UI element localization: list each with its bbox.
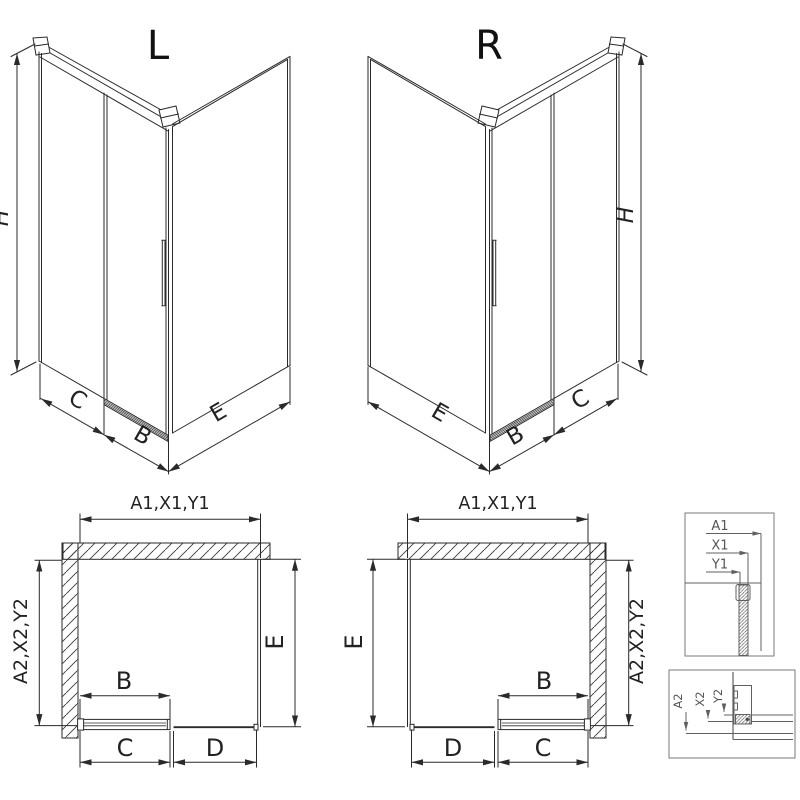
plan-right-label-d: D <box>444 734 462 762</box>
plan-left-label-b: B <box>116 667 132 695</box>
plan-right-label-a2x2y2: A2,X2,Y2 <box>626 598 648 684</box>
detail-label-a1: A1 <box>711 519 728 534</box>
detail-label-x1: X1 <box>711 539 728 554</box>
plan-view-left: A1,X1,Y1 A2,X2,Y2 E B C D <box>10 494 301 768</box>
shower-enclosure-dimension-diagram: L H C B E R H E B C A1,X1,Y1 A2,X2,Y2 E … <box>0 0 800 800</box>
variant-label-right: R <box>475 23 503 69</box>
dim-label-e-left: E <box>206 398 232 428</box>
dim-label-e-right: E <box>427 398 453 428</box>
detail-label-x2: X2 <box>693 691 707 706</box>
plan-left-label-c: C <box>117 734 134 762</box>
plan-right-label-b: B <box>536 667 552 695</box>
plan-right-label-e: E <box>340 634 368 649</box>
plan-right-label-a1x1y1: A1,X1,Y1 <box>458 494 537 514</box>
plan-left-label-a2x2y2: A2,X2,Y2 <box>10 598 32 684</box>
dim-label-c-left: C <box>64 385 91 416</box>
variant-label-left: L <box>147 23 170 69</box>
detail-label-y1: Y1 <box>711 558 728 573</box>
wall-hatching <box>62 543 606 738</box>
plan-left-label-e: E <box>261 634 289 649</box>
diagram-canvas: L H C B E R H E B C A1,X1,Y1 A2,X2,Y2 E … <box>0 0 800 800</box>
dim-label-b-right: B <box>502 421 529 451</box>
plan-left-label-d: D <box>206 734 224 762</box>
detail-label-a2: A2 <box>671 693 685 708</box>
iso-view-left: L H C B E <box>0 23 290 474</box>
detail-top-profile-section: A1 X1 Y1 <box>685 513 774 656</box>
plan-left-label-a1x1y1: A1,X1,Y1 <box>130 494 209 514</box>
iso-view-right: R H E B C <box>368 23 647 474</box>
dim-label-height-left: H <box>0 210 14 227</box>
dim-label-c-right: C <box>567 385 594 416</box>
dim-label-b-left: B <box>129 421 156 451</box>
iso-geometry-right <box>368 37 647 474</box>
detail-bottom-profile-section: A2 X2 Y2 <box>669 670 795 758</box>
iso-geometry-left <box>11 37 290 474</box>
dim-label-height-right: H <box>614 207 639 224</box>
plan-right-label-c: C <box>535 734 552 762</box>
detail-label-y2: Y2 <box>711 689 725 704</box>
